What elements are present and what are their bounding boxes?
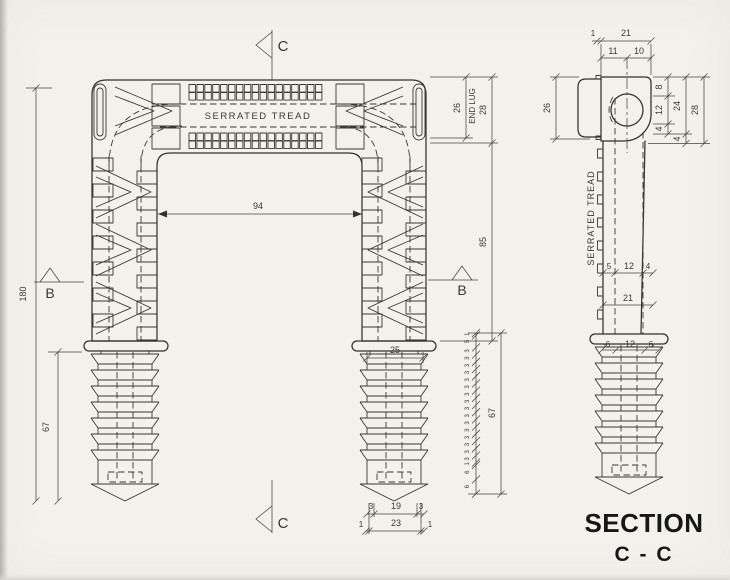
tread-cell: [300, 93, 307, 101]
pitch-dim-label: 3: [465, 399, 471, 403]
leg-serration: [137, 275, 157, 288]
sec-dim-top-edge: 1: [591, 29, 596, 38]
leg-serration: [406, 197, 426, 210]
scanned-drawing-page: SERRATED TREAD 153333333333333333166 180…: [0, 0, 730, 580]
tread-cell: [236, 93, 243, 101]
tread-cell: [213, 133, 220, 141]
leg-serration: [362, 288, 382, 301]
dim-tip-edge-right: 1: [428, 520, 433, 529]
tread-cell: [260, 93, 267, 101]
tread-cell: [315, 141, 322, 149]
tread-cell: [229, 141, 236, 149]
leg-serration: [362, 236, 382, 249]
tread-cell: [244, 141, 251, 149]
section-serration-bump: [598, 310, 604, 319]
pitch-detail-chain: 153333333333333333166: [465, 329, 480, 498]
anchor-tip-hidden: [612, 465, 646, 475]
tread-cell: [189, 133, 196, 141]
pitch-dim-label: 6: [465, 470, 471, 474]
tread-cell: [229, 85, 236, 93]
sec-dim-anchor-right: 6: [649, 340, 654, 349]
section-marker-b-right: B: [457, 282, 466, 298]
tread-cell: [300, 141, 307, 149]
title-block: SECTION C - C: [584, 508, 703, 566]
tread-cell: [205, 141, 212, 149]
tread-cell: [236, 133, 243, 141]
leg-serration: [406, 249, 426, 262]
pitch-dim-label: 3: [465, 413, 471, 417]
dim-leg-length: 85: [478, 237, 488, 247]
dim-head-height: 28: [478, 105, 488, 115]
tread-cell: [236, 85, 243, 93]
leg-serration: [362, 262, 382, 275]
section-marker-triangles: [40, 32, 472, 532]
threaded-anchors: [91, 344, 663, 501]
tread-cell: [244, 85, 251, 93]
sec-dim-anchor-left: 6: [606, 340, 611, 349]
tread-cell: [292, 141, 299, 149]
anchor-ribs: [91, 351, 159, 501]
tread-cell: [205, 85, 212, 93]
pitch-dim-label: 3: [465, 377, 471, 381]
section-marker-c-top: C: [278, 38, 289, 55]
leg-chevron-inner: [388, 235, 423, 265]
tread-cell: [213, 141, 220, 149]
end-lug-slot-left-inner: [97, 88, 103, 136]
pitch-dim-label: 3: [465, 442, 471, 446]
tread-cell: [315, 93, 322, 101]
tread-cell: [197, 85, 204, 93]
sec-dim-right-top: 8: [654, 84, 664, 89]
dim-overall-height: 180: [18, 286, 28, 301]
section-serrated-tread-label: SERRATED TREAD: [586, 170, 596, 265]
sec-dim-leg-left: 5: [607, 262, 612, 271]
leg-chevron: [96, 224, 151, 276]
pitch-dim-label: 5: [465, 339, 471, 343]
tread-cell: [308, 93, 315, 101]
section-view: SERRATED TREAD 1 21 11 10 26 8 12 4 24 4…: [542, 28, 700, 349]
tread-cell: [252, 133, 259, 141]
dim-tip-width: 19: [391, 501, 401, 511]
leg-serration: [137, 223, 157, 236]
tread-cell: [244, 93, 251, 101]
pitch-dim-label: 3: [465, 428, 471, 432]
end-lug-slot-right-inner: [416, 88, 422, 136]
tread-cell: [221, 93, 228, 101]
tread-cell: [268, 141, 275, 149]
tread-cell: [197, 133, 204, 141]
leg-chevron-inner: [388, 293, 423, 323]
anchor-ribs: [595, 344, 663, 494]
tread-cell: [300, 85, 307, 93]
tread-cell: [284, 85, 291, 93]
sec-dim-top-width: 21: [621, 28, 631, 38]
leg-serration: [362, 314, 382, 327]
tread-cell: [308, 133, 315, 141]
tread-cell: [284, 141, 291, 149]
leg-serration: [406, 301, 426, 314]
tread-cell: [260, 133, 267, 141]
pitch-dim-label: 3: [465, 349, 471, 353]
sec-dim-head-depth: 26: [542, 103, 552, 113]
pitch-dim-label: 6: [465, 484, 471, 488]
title-line2: C - C: [615, 543, 674, 566]
dim-tip-chamfer-right: 3: [419, 502, 424, 511]
tread-cell: [213, 85, 220, 93]
leg-serration: [93, 314, 113, 327]
leg-serration: [362, 158, 382, 171]
pitch-dim-label: 3: [465, 356, 471, 360]
leg-chevron: [368, 224, 423, 276]
section-end-lug: [578, 79, 601, 137]
sec-dim-anchor-mid: 12: [625, 339, 635, 349]
tread-cell: [189, 141, 196, 149]
leg-chevron-inner: [96, 235, 131, 265]
sec-dim-right-span: 24: [672, 101, 682, 111]
leg-serration: [93, 184, 113, 197]
sec-dim-right-bottom: 4: [654, 126, 664, 131]
anchor-ribs: [360, 351, 428, 501]
section-serration-bump: [598, 195, 604, 204]
section-serration-bump: [598, 172, 604, 181]
tread-cell: [268, 85, 275, 93]
pitch-dim-label: 1: [465, 332, 471, 336]
tread-cell: [252, 85, 259, 93]
pitch-dim-label: 3: [465, 392, 471, 396]
tread-cell: [268, 133, 275, 141]
tread-cell: [213, 93, 220, 101]
flange-left: [84, 341, 168, 351]
tread-cell: [221, 141, 228, 149]
dim-anchor-length: 67: [41, 422, 51, 432]
leg-serration: [362, 210, 382, 223]
dim-tip-chamfer-left: 3: [369, 502, 374, 511]
tread-cell: [260, 85, 267, 93]
tread-cell: [205, 93, 212, 101]
tread-cell: [292, 133, 299, 141]
leg-chevron: [368, 282, 423, 334]
tread-cell: [236, 141, 243, 149]
sec-dim-right-mid: 12: [654, 105, 664, 115]
tread-cell: [276, 133, 283, 141]
tread-cell: [276, 85, 283, 93]
tread-cell: [308, 85, 315, 93]
leg-chevron-inner: [388, 177, 423, 207]
tread-cell: [244, 133, 251, 141]
anchor-tip-hidden: [377, 472, 411, 482]
leg-serration: [137, 171, 157, 184]
serrated-tread-label: SERRATED TREAD: [205, 111, 312, 122]
section-serration-bump: [598, 149, 604, 158]
section-serration-bump: [598, 287, 604, 296]
leg-serration: [137, 327, 157, 340]
pitch-dim-label: 1: [465, 461, 471, 465]
tread-cell: [260, 141, 267, 149]
tread-cell: [292, 93, 299, 101]
leg-serration: [406, 223, 426, 236]
section-marker-c-bottom: C: [278, 515, 289, 532]
leg-chevron-inner: [96, 293, 131, 323]
tread-cell: [221, 85, 228, 93]
dim-inner-width: 94: [253, 201, 263, 211]
sec-dim-right-lower: 4: [672, 136, 682, 141]
tread-cell: [252, 141, 259, 149]
tread-cell: [315, 85, 322, 93]
tread-cell: [308, 141, 315, 149]
end-lug-slot-right: [413, 84, 425, 140]
sec-dim-top-right: 10: [634, 46, 644, 56]
pitch-dim-label: 3: [465, 406, 471, 410]
leg-serration-pattern: [93, 156, 426, 341]
tread-cell: [292, 85, 299, 93]
pitch-dim-label: 3: [465, 421, 471, 425]
dim-end-lug-height: 26: [452, 103, 462, 113]
tread-cell: [276, 93, 283, 101]
tread-cell: [189, 85, 196, 93]
dim-anchor-width: 25: [390, 345, 400, 355]
tread-cell: [189, 93, 196, 101]
pitch-dim-label: 3: [465, 385, 471, 389]
tread-cell: [252, 93, 259, 101]
tread-cell: [229, 133, 236, 141]
sec-dim-top-left: 11: [608, 46, 617, 56]
tread-cell: [221, 133, 228, 141]
pitch-dim-label: 3: [465, 363, 471, 367]
pitch-dim-label: 3: [465, 435, 471, 439]
tread-cell: [284, 133, 291, 141]
pitch-dim-label: 3: [465, 449, 471, 453]
pitch-dim-label: 3: [465, 370, 471, 374]
section-serration-bump: [598, 218, 604, 227]
sec-dim-leg-mid: 12: [624, 261, 634, 271]
leg-serration: [137, 197, 157, 210]
leg-chevron-inner: [96, 177, 131, 207]
pitch-dim-label: 3: [465, 457, 471, 461]
tread-cell: [268, 93, 275, 101]
end-lug-slot-left: [94, 84, 106, 140]
anchor-tip-hidden: [108, 472, 142, 482]
tread-cell: [197, 141, 204, 149]
dim-pitch-total: 67: [487, 408, 497, 418]
sec-dim-right-total: 28: [690, 105, 700, 115]
leg-serration-bumps: [598, 149, 604, 319]
sec-dim-leg-right: 4: [646, 262, 651, 271]
section-marker-b-left: B: [45, 285, 54, 301]
tread-cell: [229, 93, 236, 101]
tread-cell: [197, 93, 204, 101]
dim-tip-edge-left: 1: [359, 520, 364, 529]
front-view: SERRATED TREAD: [84, 80, 663, 501]
end-lug-label: END LUG: [468, 88, 477, 124]
leg-serration: [406, 327, 426, 340]
tread-cell: [300, 133, 307, 141]
tread-cell: [276, 141, 283, 149]
tread-cell: [284, 93, 291, 101]
leg-chevron: [96, 282, 151, 334]
section-serration-bump: [598, 264, 604, 273]
tread-cell: [205, 133, 212, 141]
leg-serration: [406, 275, 426, 288]
dim-tip-outer-width: 23: [391, 518, 401, 528]
tread-cell: [315, 133, 322, 141]
technical-drawing: SERRATED TREAD 153333333333333333166 180…: [0, 0, 730, 580]
leg-serration: [93, 210, 113, 223]
sec-dim-leg-width: 21: [623, 293, 633, 303]
title-line1: SECTION: [584, 508, 703, 538]
section-serration-bump: [598, 241, 604, 250]
